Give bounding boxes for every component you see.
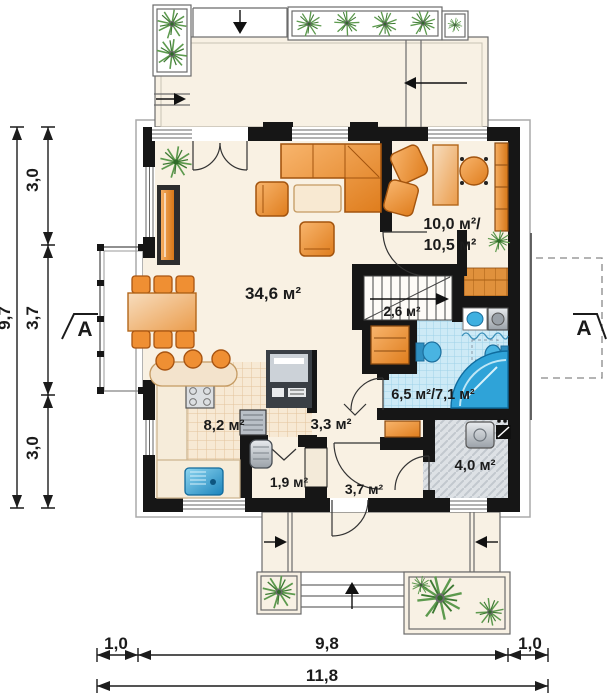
section-cut-zone — [536, 258, 602, 378]
top-terrace — [151, 5, 488, 127]
floor-plan-page: A A 34,6 м² 10,0 м²/ 10,5 м² 2,6 м² 6,5 … — [0, 0, 608, 700]
dim-bottom-seg-3: 1,0 — [518, 634, 542, 653]
top-left-planter — [153, 5, 191, 76]
dining-chair — [154, 331, 172, 348]
bar-stools — [156, 350, 230, 370]
room-label-office-1: 10,0 м²/ — [423, 216, 481, 233]
dim-left-seg-1: 3,0 — [23, 168, 42, 192]
dim-left-seg-3: 3,0 — [23, 436, 42, 460]
section-marker-right: A — [573, 314, 606, 340]
bottom-terrace — [257, 512, 510, 634]
wall-stairs-top — [352, 264, 464, 276]
dining-chair — [132, 331, 150, 348]
room-label-stairs: 2,6 м² — [384, 304, 422, 319]
pantry-boiler — [250, 440, 272, 468]
section-label-right: A — [576, 317, 591, 340]
wall-vestibule-top — [380, 437, 423, 450]
wall-pillar-cap-bottom — [305, 486, 327, 498]
dining-chair — [176, 276, 194, 293]
coffee-table — [294, 185, 341, 212]
floor-plan-drawing: A A 34,6 м² 10,0 м²/ 10,5 м² 2,6 м² 6,5 … — [0, 0, 608, 700]
tv-cabinet-front — [161, 190, 174, 260]
wall-pillar-cap-top — [305, 437, 327, 449]
boiler — [466, 422, 494, 448]
armchair — [300, 222, 334, 256]
dining-chair — [132, 276, 150, 293]
wall-utility-left-stub — [423, 490, 435, 500]
dim-left-total: 9,7 — [0, 306, 14, 330]
room-label-vestibule: 3,7 м² — [345, 481, 384, 497]
dining-chair — [176, 331, 194, 348]
room-label-hall: 3,3 м² — [310, 416, 351, 433]
fridge-unit — [266, 350, 312, 408]
wall-bathroom-top — [452, 296, 520, 308]
room-label-office-2: 10,5 м² — [424, 237, 477, 254]
bar-stool — [184, 350, 202, 368]
wall-pillar — [305, 448, 327, 487]
wall-right — [508, 127, 520, 512]
hall-cabinet — [371, 326, 409, 364]
dim-left-seg-2: 3,7 — [23, 306, 42, 330]
kitchen-sink — [185, 468, 223, 495]
dim-bottom-seg-2: 9,8 — [315, 634, 339, 653]
lintel-b — [350, 122, 378, 128]
top-planter — [288, 7, 468, 40]
bar-stool — [212, 350, 230, 368]
dim-bottom-total: 11,8 — [306, 666, 338, 685]
section-label-left: A — [77, 318, 92, 341]
section-marker-left: A — [62, 314, 98, 341]
room-label-pantry: 1,9 м² — [270, 474, 309, 490]
dining-table — [128, 293, 196, 331]
stove — [186, 385, 214, 408]
bottom-terrace-deck — [262, 512, 500, 572]
dining-set — [128, 276, 196, 348]
wall-bathroom-bottom — [377, 408, 520, 420]
arrow-down-icon — [233, 22, 247, 34]
dim-bottom-seg-1: 1,0 — [104, 634, 128, 653]
arrow-up-icon — [345, 582, 359, 594]
washing-machine — [488, 308, 508, 330]
bar-stool — [156, 352, 174, 370]
vestibule-cabinet — [385, 421, 420, 437]
top-terrace-deck — [155, 37, 488, 127]
office-chair — [460, 157, 488, 185]
room-label-utility: 4,0 м² — [454, 457, 495, 474]
washbasin — [463, 308, 487, 330]
toilet — [416, 342, 441, 362]
desk — [433, 145, 458, 205]
armchair — [256, 182, 288, 216]
wall-niche-bottom — [362, 364, 417, 374]
room-label-bathroom: 6,5 м²/7,1 м² — [391, 387, 475, 403]
room-label-kitchen: 8,2 м² — [203, 417, 244, 434]
dining-chair — [154, 276, 172, 293]
room-label-living: 34,6 м² — [245, 284, 301, 303]
lintel-a — [263, 122, 293, 128]
